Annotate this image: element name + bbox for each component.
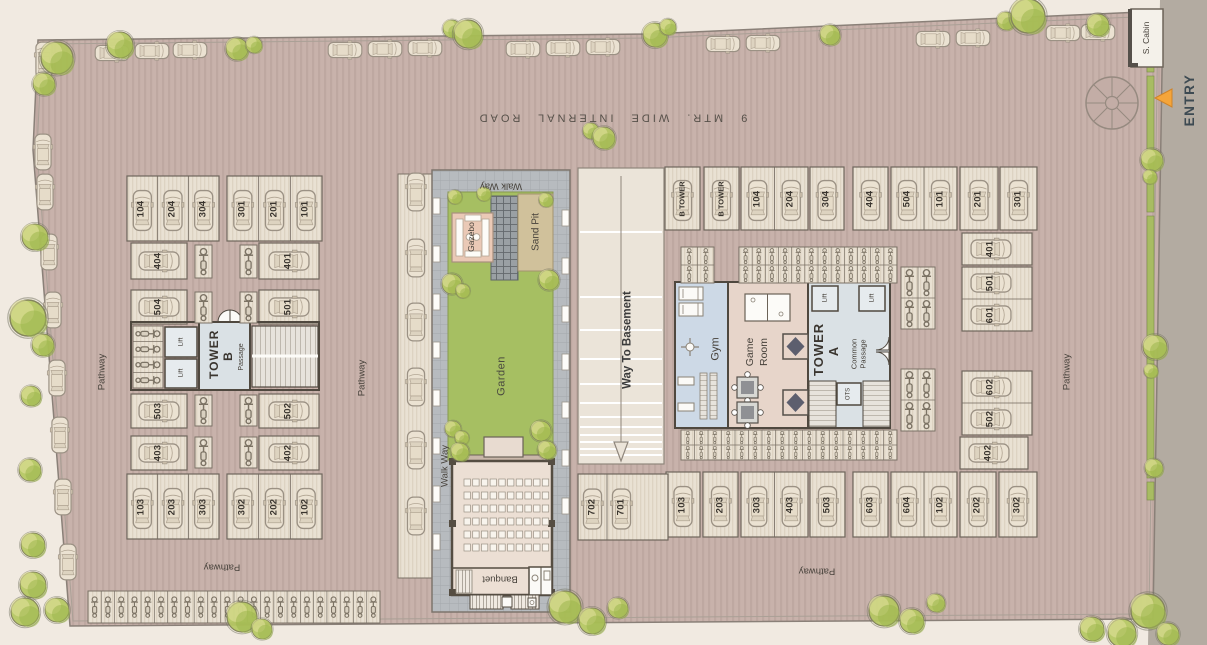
car-icon — [582, 489, 604, 529]
banquet-chair — [464, 518, 470, 525]
car-icon — [193, 191, 215, 231]
banquet-chair — [516, 544, 522, 551]
tree-icon — [452, 18, 484, 50]
banquet-chair — [499, 492, 505, 499]
car-icon — [232, 489, 254, 529]
tree-icon — [18, 570, 47, 599]
paved-circle — [1086, 77, 1138, 129]
banquet-chair — [490, 531, 496, 538]
car-icon — [967, 487, 989, 527]
banquet-chair — [464, 544, 470, 551]
banquet-chair — [516, 492, 522, 499]
tree-icon — [1142, 169, 1158, 185]
car-icon — [406, 173, 427, 211]
planter — [562, 450, 569, 466]
tree-icon — [8, 298, 49, 339]
car-icon — [506, 40, 540, 58]
lift-room — [859, 286, 885, 311]
tree-icon — [538, 269, 561, 292]
banquet-chair — [490, 518, 496, 525]
car-icon — [406, 368, 427, 406]
tree-icon — [819, 24, 842, 47]
banquet-chair — [542, 544, 548, 551]
planter — [433, 342, 440, 358]
car-icon — [930, 487, 952, 527]
car-icon — [747, 181, 769, 221]
car-icon — [406, 303, 427, 341]
banquet-chair — [534, 518, 540, 525]
car-icon — [916, 30, 950, 48]
car-icon — [139, 296, 179, 318]
car-icon — [269, 442, 309, 464]
banquet-chair — [481, 479, 487, 486]
banquet-chair — [508, 492, 514, 499]
planter — [433, 390, 440, 406]
car-icon — [139, 442, 179, 464]
tree-icon — [455, 283, 471, 299]
banquet-chair — [481, 492, 487, 499]
banquet-chair — [464, 505, 470, 512]
boundary-green-strip — [1147, 32, 1154, 500]
tower-a-block — [675, 282, 890, 428]
car-icon — [408, 39, 442, 57]
tree-icon — [251, 618, 274, 641]
banquet-chair — [525, 479, 531, 486]
banquet-chair — [499, 505, 505, 512]
tree-icon — [245, 36, 263, 54]
car-icon — [269, 400, 309, 422]
banquet-chair — [516, 479, 522, 486]
banquet-chair — [525, 505, 531, 512]
car-icon — [193, 489, 215, 529]
stairs — [863, 381, 890, 427]
tree-icon — [926, 593, 946, 613]
car-icon — [173, 41, 207, 59]
car-icon — [746, 34, 780, 52]
planter — [562, 210, 569, 226]
car-icon — [956, 29, 990, 47]
banquet-chair — [490, 479, 496, 486]
car-icon — [586, 38, 620, 56]
car-icon — [139, 400, 179, 422]
tree-icon — [20, 532, 47, 559]
banquet-chair — [490, 544, 496, 551]
banquet-chair — [534, 544, 540, 551]
banquet-chair — [473, 505, 479, 512]
banquet-chair — [525, 492, 531, 499]
car-icon — [971, 238, 1011, 260]
banquet-chair — [525, 544, 531, 551]
banquet-chair — [473, 544, 479, 551]
car-icon — [706, 35, 740, 53]
tree-icon — [44, 597, 71, 624]
car-icon — [971, 304, 1011, 326]
car-icon — [131, 191, 153, 231]
tree-icon — [31, 333, 56, 358]
tree-icon — [530, 420, 553, 443]
banquet-chair — [499, 531, 505, 538]
car-icon — [264, 191, 286, 231]
tree-icon — [607, 597, 630, 620]
car-icon — [860, 181, 882, 221]
site-plan-drawing — [0, 0, 1207, 645]
banquet-chair — [516, 505, 522, 512]
car-icon — [971, 408, 1011, 430]
car-icon — [710, 487, 732, 527]
car-icon — [860, 487, 882, 527]
tree-icon — [39, 40, 75, 76]
two-wheeler-stall-strip — [681, 247, 714, 283]
site-plan: 9 MTR. WIDE INTERNAL ROAD ENTRY S. Cabin… — [0, 0, 1207, 645]
banquet-chair — [473, 479, 479, 486]
tree-icon — [659, 18, 677, 36]
tree-icon — [1086, 13, 1111, 38]
tree-icon — [18, 458, 43, 483]
planter — [433, 534, 440, 550]
car-icon — [295, 191, 317, 231]
banquet-chair — [499, 544, 505, 551]
car-icon — [232, 191, 254, 231]
banquet-chair — [508, 544, 514, 551]
car-icon — [131, 489, 153, 529]
car-icon — [611, 489, 633, 529]
car-icon — [269, 296, 309, 318]
car-icon — [135, 42, 169, 60]
tree-icon — [9, 596, 41, 628]
car-icon — [1008, 181, 1030, 221]
tree-icon — [1009, 0, 1047, 35]
banquet-chair — [542, 479, 548, 486]
banquet-chair — [508, 531, 514, 538]
security-cabin — [1128, 9, 1163, 67]
car-icon — [672, 487, 694, 527]
car-icon — [368, 40, 402, 58]
car-icon — [58, 544, 78, 580]
car-icon — [1046, 24, 1080, 42]
banquet-chair — [473, 531, 479, 538]
car-icon — [50, 417, 70, 453]
car-icon — [747, 487, 769, 527]
tree-icon — [1142, 334, 1169, 361]
tree-icon — [867, 594, 901, 628]
banquet-chair — [542, 492, 548, 499]
banquet-chair — [499, 518, 505, 525]
gazebo-structure — [452, 213, 493, 262]
car-icon — [295, 489, 317, 529]
tree-icon — [1079, 616, 1106, 643]
banquet-chair — [490, 492, 496, 499]
banquet-chair — [508, 479, 514, 486]
paved-grid-area — [491, 196, 518, 280]
car-icon — [971, 272, 1011, 294]
car-icon — [162, 489, 184, 529]
car-icon — [816, 181, 838, 221]
car-icon — [269, 250, 309, 272]
banquet-chair — [508, 518, 514, 525]
banquet-chair — [499, 479, 505, 486]
tree-icon — [20, 222, 49, 251]
tree-icon — [476, 186, 492, 202]
tree-icon — [1143, 363, 1159, 379]
banquet-chair — [542, 505, 548, 512]
planter — [433, 438, 440, 454]
lift-room — [812, 286, 838, 311]
car-icon — [1007, 487, 1029, 527]
lift-room — [165, 327, 197, 357]
car-icon — [711, 181, 733, 221]
car-icon — [897, 181, 919, 221]
tree-icon — [592, 126, 617, 151]
tree-icon — [20, 385, 43, 408]
car-icon — [930, 181, 952, 221]
car-icon — [33, 134, 53, 170]
car-icon — [897, 487, 919, 527]
banquet-chair — [464, 492, 470, 499]
banquet-chair — [481, 544, 487, 551]
car-icon — [969, 442, 1009, 464]
car-icon — [162, 191, 184, 231]
banquet-chair — [534, 531, 540, 538]
lift-room — [165, 359, 197, 388]
tree-icon — [1106, 617, 1138, 645]
car-icon — [47, 360, 67, 396]
two-wheeler-stall-strip — [739, 247, 897, 283]
banquet-chair — [534, 492, 540, 499]
car-icon — [35, 174, 55, 210]
banquet-chair — [490, 505, 496, 512]
banquet-chair — [473, 492, 479, 499]
tree-icon — [538, 192, 554, 208]
tree-icon — [899, 608, 926, 635]
car-icon — [968, 181, 990, 221]
car-icon — [780, 487, 802, 527]
planter — [562, 354, 569, 370]
tree-icon — [537, 440, 557, 460]
car-icon — [780, 181, 802, 221]
basement-ramp — [578, 168, 664, 464]
banquet-chair — [481, 518, 487, 525]
car-icon — [139, 250, 179, 272]
stairs — [809, 381, 836, 427]
car-icon — [672, 181, 694, 221]
car-icon — [971, 376, 1011, 398]
car-icon — [53, 479, 73, 515]
car-icon — [406, 431, 427, 469]
banquet-chair — [525, 518, 531, 525]
banquet-chair — [534, 505, 540, 512]
banquet-chair — [464, 479, 470, 486]
ots-room — [837, 383, 861, 405]
banquet-chair — [473, 518, 479, 525]
banquet-chair — [481, 505, 487, 512]
banquet-chair — [516, 518, 522, 525]
banquet-chair — [508, 505, 514, 512]
car-icon — [406, 239, 427, 277]
tree-icon — [32, 72, 57, 97]
banquet-chair — [534, 479, 540, 486]
car-icon — [406, 497, 427, 535]
planter — [562, 498, 569, 514]
banquet-chair — [542, 531, 548, 538]
planter — [433, 486, 440, 502]
tree-icon — [1140, 148, 1165, 173]
tree-icon — [105, 30, 134, 59]
tree-icon — [577, 606, 606, 635]
planter — [562, 306, 569, 322]
tree-icon — [1144, 458, 1164, 478]
banquet-chair — [464, 531, 470, 538]
planter — [433, 246, 440, 262]
banquet-chair — [516, 531, 522, 538]
tree-icon — [447, 189, 463, 205]
tree-icon — [1156, 622, 1181, 645]
banquet-chair — [525, 531, 531, 538]
banquet-chair — [481, 531, 487, 538]
tree-icon — [450, 442, 470, 462]
planter — [433, 198, 440, 214]
planter — [562, 258, 569, 274]
tower-b-core — [199, 322, 250, 390]
car-icon — [264, 489, 286, 529]
car-icon — [546, 39, 580, 57]
car-icon — [328, 41, 362, 59]
planter — [562, 402, 569, 418]
banquet-chair — [542, 518, 548, 525]
car-icon — [817, 487, 839, 527]
planter — [433, 294, 440, 310]
